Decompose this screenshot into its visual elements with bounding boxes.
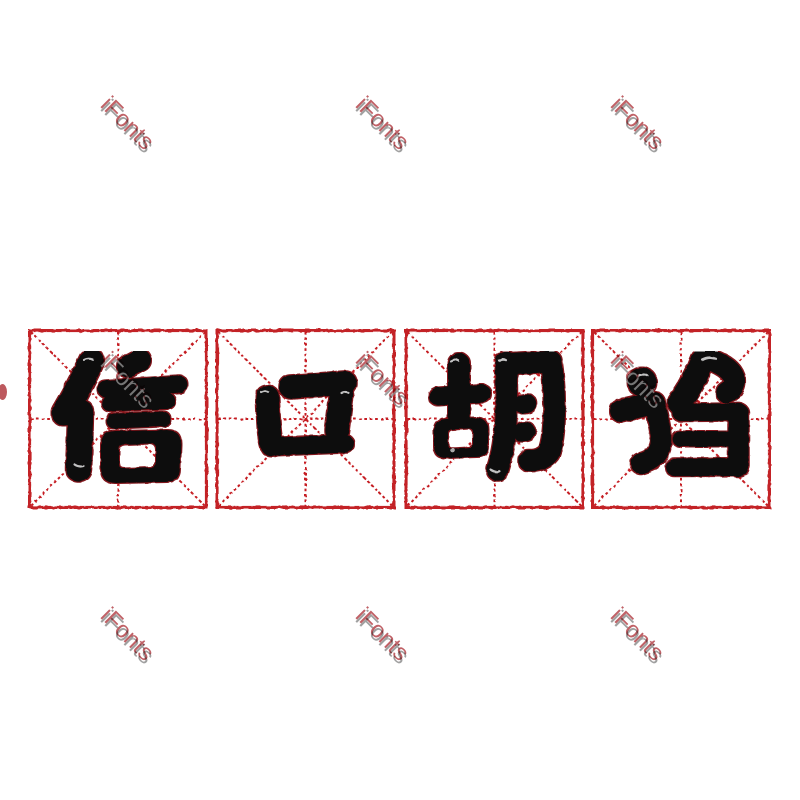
- svg-text:iFonts: iFonts: [606, 602, 670, 666]
- svg-text:iFonts: iFonts: [96, 91, 160, 155]
- svg-text:iFonts: iFonts: [351, 91, 415, 155]
- svg-text:iFonts: iFonts: [96, 602, 160, 666]
- svg-text:iFonts: iFonts: [606, 91, 670, 155]
- svg-text:iFonts: iFonts: [351, 602, 415, 666]
